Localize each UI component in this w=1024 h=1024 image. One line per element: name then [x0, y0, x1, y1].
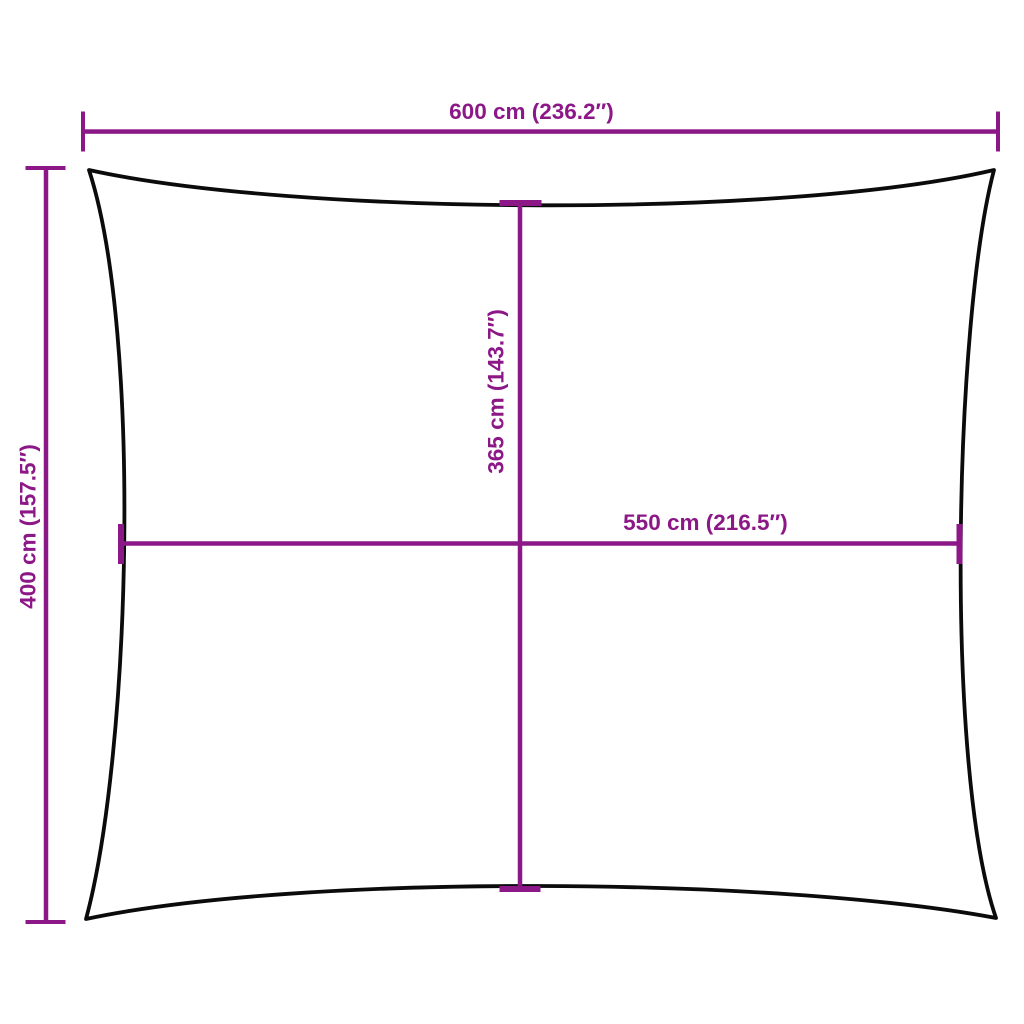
- svg-text:550 cm (216.5″): 550 cm (216.5″): [623, 510, 788, 535]
- svg-text:365 cm (143.7″): 365 cm (143.7″): [484, 309, 509, 474]
- svg-text:600 cm (236.2″): 600 cm (236.2″): [449, 99, 614, 124]
- svg-text:400 cm (157.5″): 400 cm (157.5″): [16, 444, 41, 609]
